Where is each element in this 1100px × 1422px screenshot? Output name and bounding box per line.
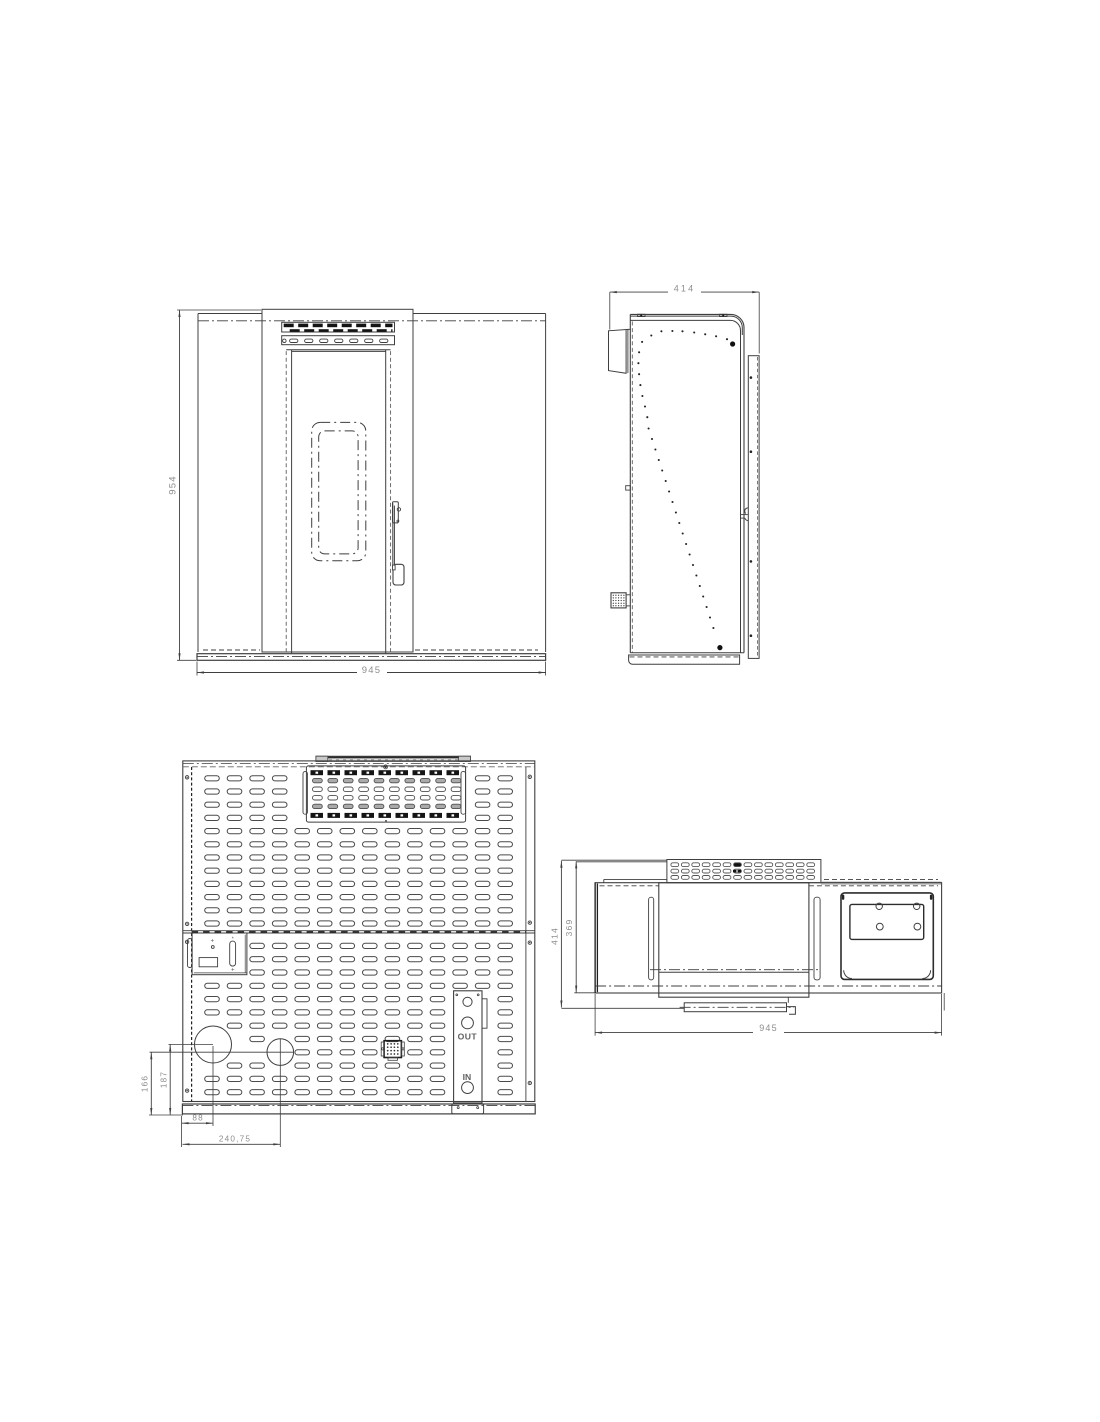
svg-text:OUT: OUT [458,1032,478,1042]
svg-text:369: 369 [564,919,574,937]
svg-text:954: 954 [167,475,178,494]
svg-text:187: 187 [160,1071,169,1088]
svg-text:88: 88 [192,1114,204,1123]
svg-text:IN: IN [463,1072,472,1082]
svg-text:414: 414 [674,283,696,293]
svg-text:+: + [211,939,215,945]
svg-text:*: * [232,936,234,942]
svg-text:945: 945 [759,1023,778,1033]
svg-text:945: 945 [362,665,381,676]
svg-text:240,75: 240,75 [219,1135,251,1144]
svg-text:414: 414 [549,927,559,945]
svg-text:166: 166 [141,1075,150,1092]
svg-text:+: + [231,968,235,974]
